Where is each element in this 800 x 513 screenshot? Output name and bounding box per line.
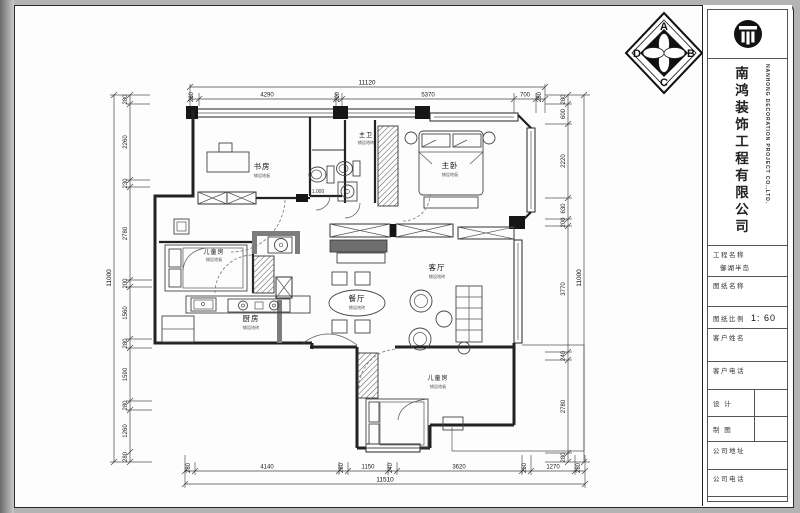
room-label-kids-2: 儿童房 (427, 374, 448, 382)
diamond-letter-c: C (660, 77, 668, 89)
dim-top-seg: 5370 (421, 93, 435, 99)
dim-top-seg: 280 (189, 91, 195, 102)
field-client-phone: 客户电话 (708, 362, 787, 390)
room-finish-dining: 铺设地砖 (349, 304, 366, 311)
dim-bottom-seg: 1150 (362, 465, 376, 471)
dim-right-seg: 3770 (561, 282, 567, 296)
dimensions-right: 280 600 2220 630 200 3770 240 2780 280 1… (545, 92, 590, 465)
dim-bottom-seg: 1270 (546, 465, 560, 471)
room-finish-kids-1: 铺设地板 (206, 256, 224, 263)
dim-left-seg: 280 (123, 451, 129, 462)
title-block: 南鸿装饰工程有限公司 NANHONG DECORATION PROJECT CO… (702, 5, 792, 506)
field-company-address: 公司地址 (708, 442, 787, 470)
dim-right-seg: 280 (561, 94, 567, 105)
dim-left-seg: 280 (123, 338, 129, 349)
dim-bottom-seg: 280 (576, 462, 582, 473)
scale-value: 1: 60 (751, 313, 776, 323)
dim-right-total: 11000 (576, 269, 583, 287)
dim-bottom-seg: 250 (522, 462, 528, 473)
designer-signature-cell (754, 390, 787, 416)
project-name-label: 工程名称 (713, 249, 782, 259)
tv-wall (330, 240, 387, 263)
remarks-label: 备 注 (713, 500, 782, 502)
dim-top-seg: 280 (537, 91, 543, 102)
dim-bottom-seg: 280 (339, 462, 345, 473)
wardrobe-hatches (253, 126, 398, 398)
dim-right-seg: 2780 (561, 399, 567, 413)
scale-label: 图纸比例 (713, 313, 745, 323)
field-designer: 设 计 (708, 390, 787, 417)
kitchen-fixtures (162, 296, 310, 342)
room-finish-kids-2: 铺设地板 (430, 383, 448, 390)
room-label-kitchen: 厨房 (243, 313, 260, 323)
company-name-en: NANHONG DECORATION PROJECT CO.,LTD. (764, 64, 770, 204)
room-label-dining: 餐厅 (349, 294, 366, 303)
dim-left-seg: 2780 (123, 226, 129, 240)
dim-top-total: 11120 (358, 80, 375, 87)
field-project-name: 工程名称 御湖半岛 (708, 246, 787, 277)
dimensions-bottom: 280 4140 280 1150 240 3620 250 1270 280 … (182, 455, 588, 488)
living-set (409, 286, 482, 354)
company-logo (708, 10, 787, 59)
dim-right-seg: 630 (561, 203, 567, 214)
room-label-kids-1: 儿童房 (203, 248, 224, 256)
master-wardrobe (378, 126, 398, 206)
dim-right-seg: 280 (561, 452, 567, 463)
room-finish-master-bath: 铺设地砖 (358, 139, 375, 146)
dim-bottom-seg: 280 (186, 462, 192, 473)
diamond-letter-a: A (660, 21, 668, 33)
dim-right-seg: 240 (561, 350, 567, 361)
floor-plan-drawing: 书房 铺设地板 主卫 铺设地砖 主卧 铺设地板 餐厅 铺设地砖 客厅 铺设地砖 … (0, 0, 800, 513)
orientation-diamond-logo: A B C D (626, 13, 702, 93)
dim-left-seg: 200 (123, 278, 129, 289)
dim-bottom-total: 11510 (376, 477, 394, 484)
dim-right-seg: 200 (561, 217, 567, 228)
scanned-drawing-sheet: 书房 铺设地板 主卫 铺设地砖 主卧 铺设地板 餐厅 铺设地砖 客厅 铺设地砖 … (0, 0, 800, 513)
dimensions-top: 11120 280 4290 200 5370 700 280 (187, 80, 548, 114)
dim-top-seg: 200 (335, 91, 341, 102)
dimensions-left: 280 2260 230 2780 200 1560 280 1590 280 … (106, 92, 152, 465)
dim-top-seg: 700 (520, 93, 531, 99)
field-company-phone: 公司电话 (708, 470, 787, 497)
company-logo-icon (728, 14, 768, 54)
dim-right-seg: 2220 (561, 154, 567, 168)
dim-right-seg: 600 (561, 108, 567, 119)
laundry-utility (268, 237, 292, 253)
field-drawing-name: 图纸名称 (708, 277, 787, 307)
drawing-name-label: 图纸名称 (713, 280, 782, 290)
dim-bottom-seg: 240 (388, 462, 394, 473)
room-label-master-bedroom: 主卧 (442, 160, 459, 170)
drafter-signature-cell (754, 417, 787, 441)
field-client-name: 客户姓名 (708, 329, 787, 362)
client-phone-label: 客户电话 (713, 365, 782, 375)
field-remarks: 备 注 (1) 本图文资料及解释权归本公司 (708, 497, 787, 502)
dim-top-seg: 4290 (260, 93, 274, 99)
room-label-master-bath: 主卫 (359, 131, 373, 139)
company-phone-label: 公司电话 (713, 473, 782, 483)
room-finish-study: 铺设地板 (254, 172, 272, 179)
field-drafter: 制 图 (708, 417, 787, 442)
project-name-value: 御湖半岛 (720, 262, 782, 272)
hall-wardrobe (253, 256, 274, 293)
dim-left-seg: 280 (123, 94, 129, 105)
elevation-marker: 1.000 (312, 189, 325, 195)
company-name-block: 南鸿装饰工程有限公司 NANHONG DECORATION PROJECT CO… (708, 59, 787, 246)
room-label-study: 书房 (254, 161, 271, 171)
client-name-label: 客户姓名 (713, 332, 782, 342)
room-label-living: 客厅 (429, 262, 446, 272)
dim-left-seg: 1560 (123, 306, 129, 320)
entry-cabinet (174, 219, 189, 234)
dim-left-seg: 230 (123, 178, 129, 189)
company-name-cn: 南鸿装饰工程有限公司 (730, 66, 750, 236)
room-finish-living: 铺设地砖 (429, 273, 446, 280)
dim-left-seg: 280 (123, 400, 129, 411)
dim-left-total: 11000 (106, 269, 113, 287)
dim-left-seg: 2260 (123, 135, 129, 149)
room-finish-master-bedroom: 铺设地板 (442, 171, 460, 178)
diamond-letter-d: D (633, 48, 641, 60)
dim-left-seg: 1590 (123, 367, 129, 381)
field-scale: 图纸比例 1: 60 (708, 307, 787, 329)
diamond-letter-b: B (687, 48, 695, 60)
company-address-label: 公司地址 (713, 445, 782, 455)
room-finish-kitchen: 铺设地砖 (243, 324, 260, 331)
dim-bottom-seg: 4140 (260, 465, 274, 471)
dim-left-seg: 1260 (123, 424, 129, 438)
study-furniture (207, 143, 249, 172)
room-labels: 书房 铺设地板 主卫 铺设地砖 主卧 铺设地板 餐厅 铺设地砖 客厅 铺设地砖 … (203, 131, 459, 390)
dim-bottom-seg: 3620 (452, 465, 466, 471)
